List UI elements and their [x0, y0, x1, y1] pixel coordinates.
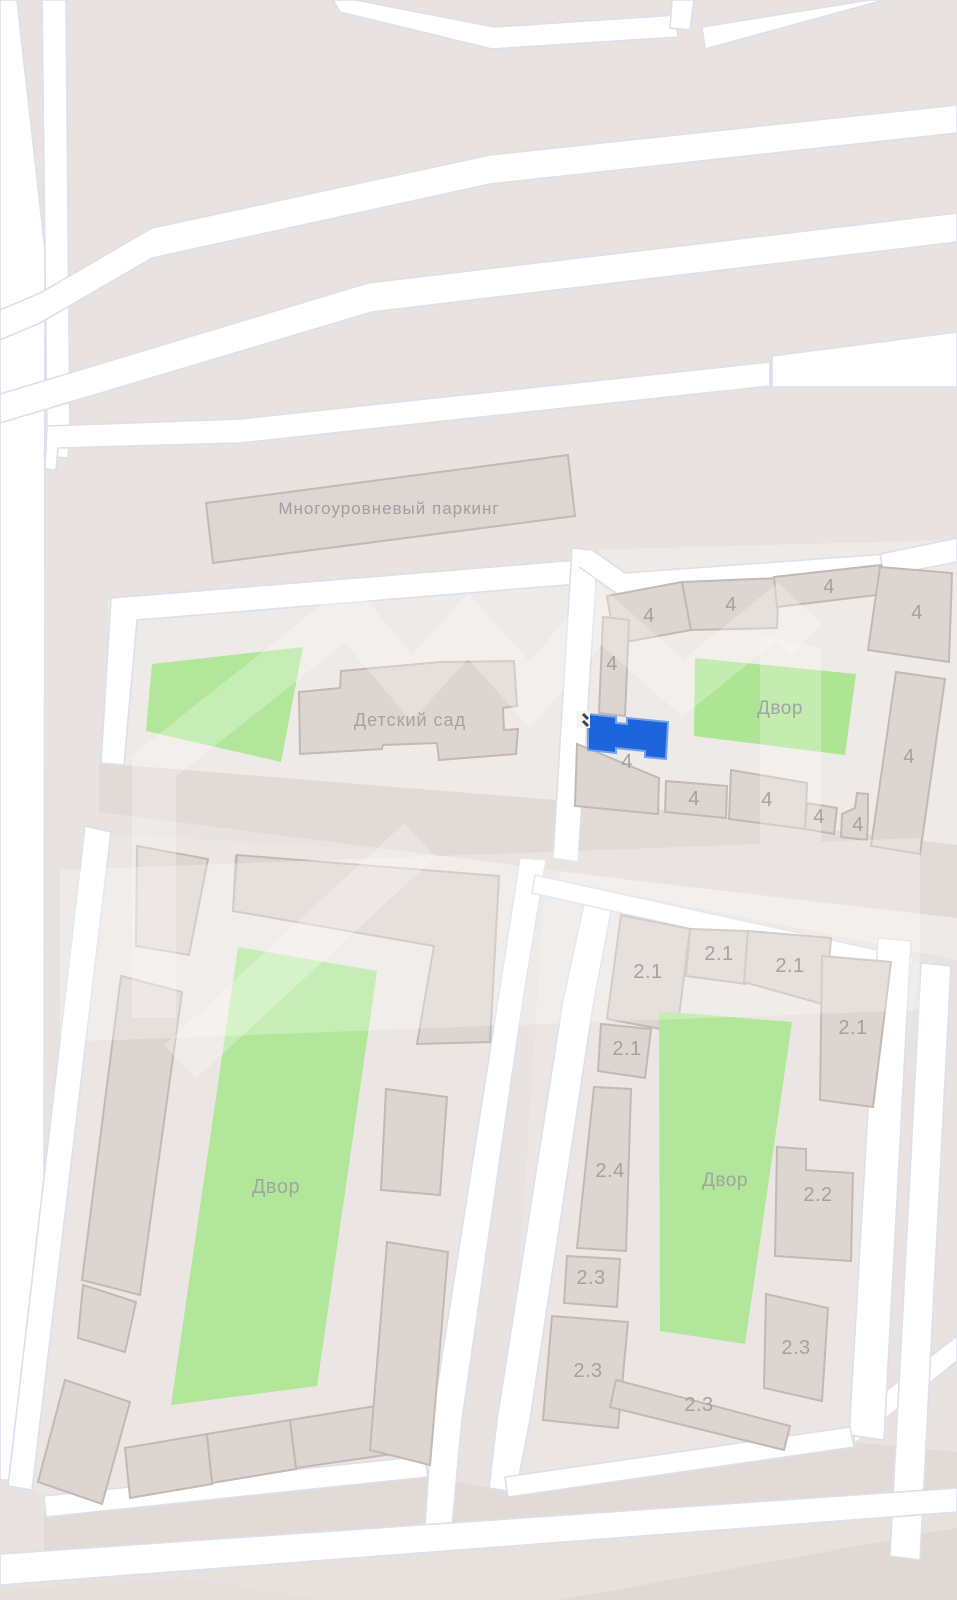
svg-text:2.1: 2.1	[775, 955, 804, 977]
svg-text:Детский сад: Детский сад	[354, 710, 466, 730]
svg-text:2.3: 2.3	[781, 1337, 810, 1359]
svg-text:4: 4	[813, 806, 825, 828]
svg-text:4: 4	[621, 751, 633, 773]
svg-text:Многоуровневый паркинг: Многоуровневый паркинг	[278, 499, 499, 518]
svg-text:4: 4	[761, 789, 773, 811]
svg-text:Двор: Двор	[757, 698, 803, 719]
svg-text:2.1: 2.1	[633, 961, 662, 983]
svg-text:4: 4	[688, 788, 700, 810]
svg-text:4: 4	[852, 814, 864, 836]
svg-text:2.3: 2.3	[573, 1360, 602, 1382]
svg-text:Двор: Двор	[702, 1170, 748, 1191]
svg-text:2.1: 2.1	[704, 943, 733, 965]
svg-text:Двор: Двор	[252, 1176, 300, 1198]
svg-text:2.3: 2.3	[684, 1394, 713, 1416]
svg-text:4: 4	[911, 602, 923, 624]
svg-text:2.3: 2.3	[576, 1267, 605, 1289]
svg-text:2.2: 2.2	[803, 1184, 832, 1206]
svg-text:2.1: 2.1	[612, 1038, 641, 1060]
svg-text:4: 4	[606, 653, 618, 675]
svg-text:4: 4	[823, 576, 835, 598]
svg-text:4: 4	[643, 605, 655, 627]
svg-text:2.4: 2.4	[595, 1160, 624, 1182]
svg-text:4: 4	[725, 594, 737, 616]
svg-text:2.1: 2.1	[838, 1017, 867, 1039]
svg-text:4: 4	[903, 746, 915, 768]
